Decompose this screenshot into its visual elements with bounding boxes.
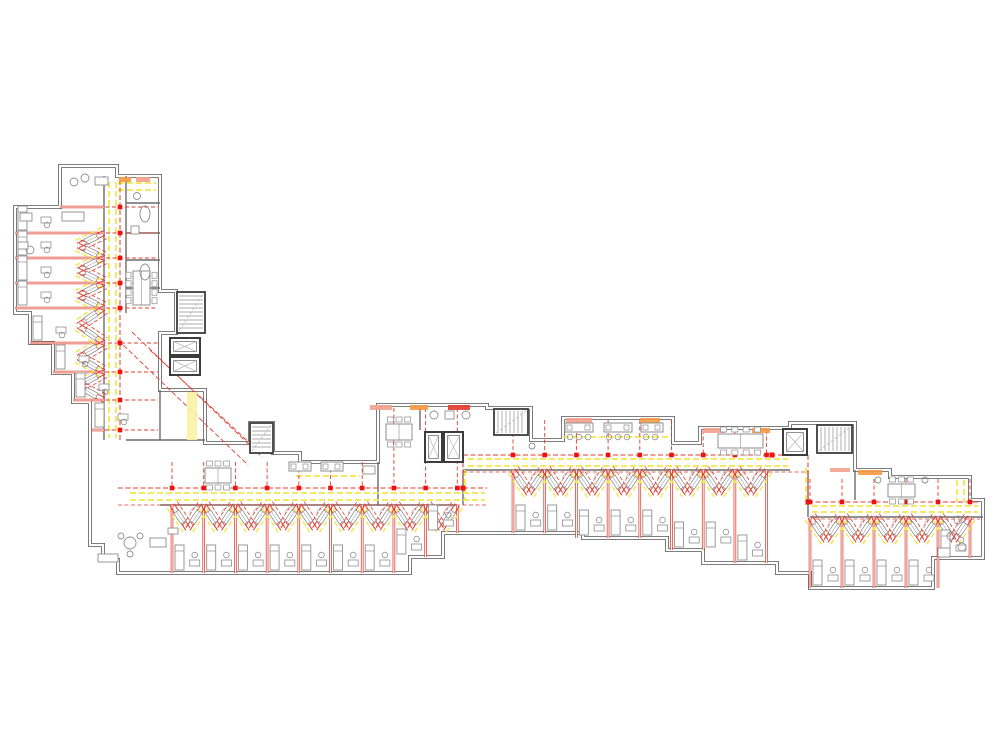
floor-plan-page [0,0,1000,750]
floor-plan-svg [0,0,1000,750]
